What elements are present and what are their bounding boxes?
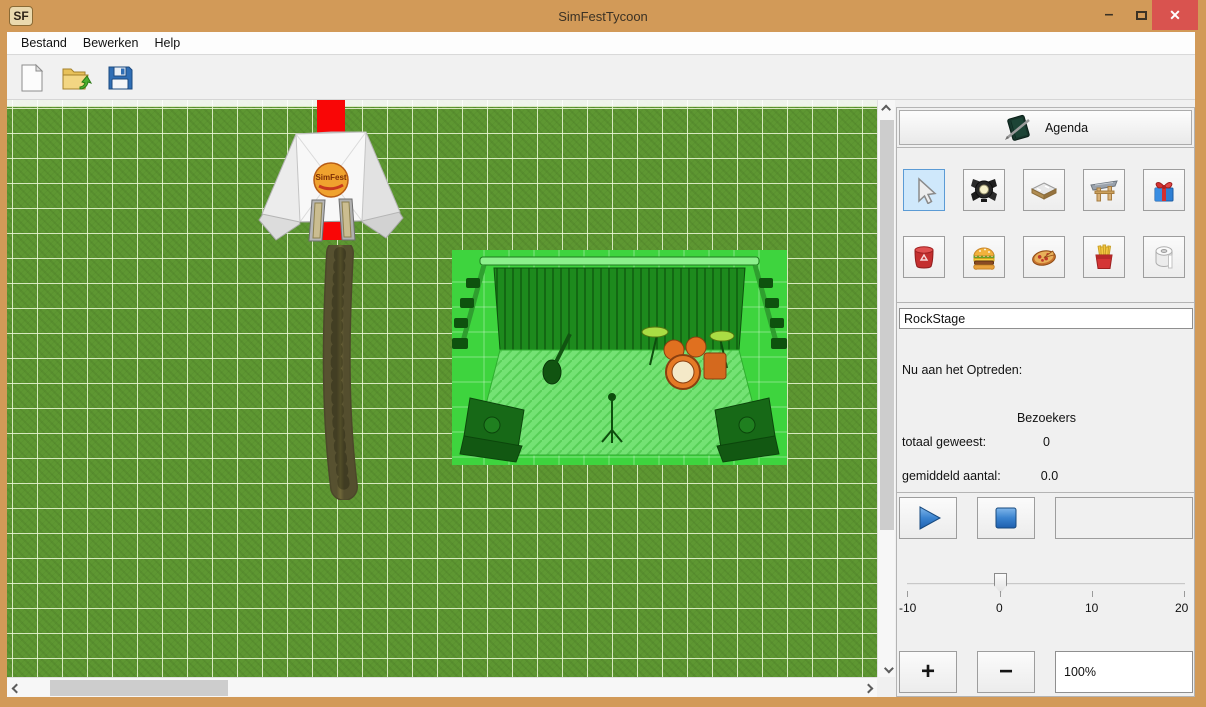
road-tile-icon bbox=[1030, 176, 1058, 204]
agenda-button[interactable]: Agenda bbox=[899, 110, 1192, 145]
slider-track[interactable] bbox=[907, 583, 1185, 585]
entrance-tent-object[interactable]: SimFest bbox=[256, 120, 406, 245]
vertical-scrollbar[interactable] bbox=[877, 100, 895, 677]
toolbar bbox=[7, 56, 1195, 100]
fries-icon bbox=[1090, 243, 1118, 271]
tent-logo: SimFest bbox=[314, 163, 348, 197]
menu-bar: Bestand Bewerken Help bbox=[7, 32, 1195, 55]
spotlight-icon bbox=[970, 176, 998, 204]
zoom-out-button[interactable]: − bbox=[977, 651, 1035, 693]
tent-leg-right bbox=[339, 199, 355, 240]
agenda-label: Agenda bbox=[1045, 121, 1088, 135]
chevron-down-icon bbox=[883, 663, 893, 673]
menu-help[interactable]: Help bbox=[147, 33, 187, 53]
entrance-gate-icon bbox=[1090, 176, 1118, 204]
trash-bin-icon bbox=[910, 243, 938, 271]
scroll-left-button[interactable] bbox=[7, 679, 25, 697]
tool-road-button[interactable] bbox=[1023, 169, 1065, 211]
agenda-section: Agenda bbox=[896, 107, 1195, 148]
new-file-button[interactable] bbox=[15, 61, 49, 95]
average-visitors-value: 0.0 bbox=[897, 469, 1202, 483]
chevron-up-icon bbox=[881, 104, 891, 114]
menu-bewerken[interactable]: Bewerken bbox=[76, 33, 146, 53]
application-window: SF SimFestTycoon – ✕ Bestand Bewerken He… bbox=[0, 0, 1206, 707]
tool-toilet-paper-button[interactable] bbox=[1143, 236, 1185, 278]
scroll-right-button[interactable] bbox=[859, 679, 877, 697]
slider-tick bbox=[1092, 591, 1093, 597]
chevron-right-icon bbox=[863, 683, 873, 693]
zoom-level-field[interactable] bbox=[1055, 651, 1193, 693]
maximize-icon bbox=[1136, 11, 1147, 20]
scroll-down-button[interactable] bbox=[878, 659, 896, 677]
slider-label-max: 20 bbox=[1175, 601, 1188, 615]
status-box bbox=[1055, 497, 1193, 539]
total-visitors-value: 0 bbox=[897, 435, 1196, 449]
close-button[interactable]: ✕ bbox=[1152, 0, 1198, 30]
side-panel: Agenda bbox=[896, 100, 1195, 697]
burger-icon bbox=[970, 243, 998, 271]
tools-section bbox=[896, 147, 1195, 303]
title-bar: SF SimFestTycoon – ✕ bbox=[0, 0, 1206, 32]
stage-speaker-left bbox=[460, 398, 524, 462]
open-file-button[interactable] bbox=[59, 61, 93, 95]
minimize-button[interactable]: – bbox=[1092, 0, 1126, 30]
slider-tick bbox=[907, 591, 908, 597]
client-area: Bestand Bewerken Help bbox=[7, 32, 1195, 697]
gift-icon bbox=[1150, 176, 1178, 204]
map-canvas[interactable]: SimFest bbox=[7, 100, 877, 677]
horizontal-scrollbar[interactable] bbox=[7, 677, 877, 697]
controls-section: -10 0 10 20 + − bbox=[896, 492, 1195, 697]
stop-button[interactable] bbox=[977, 497, 1035, 539]
tool-entrance-button[interactable] bbox=[1083, 169, 1125, 211]
toilet-paper-icon bbox=[1150, 243, 1178, 271]
open-file-icon bbox=[60, 63, 92, 93]
dirt-path-object[interactable] bbox=[322, 245, 367, 500]
scrollbar-corner bbox=[877, 677, 895, 697]
map-area: SimFest bbox=[7, 100, 895, 697]
vertical-scroll-thumb[interactable] bbox=[880, 120, 894, 530]
tent-leg-left bbox=[309, 200, 325, 241]
tool-select-button[interactable] bbox=[903, 169, 945, 211]
stage-speaker-right bbox=[715, 398, 779, 462]
svg-text:SimFest: SimFest bbox=[315, 173, 346, 182]
slider-thumb[interactable] bbox=[994, 573, 1007, 593]
pizza-icon bbox=[1030, 243, 1058, 271]
chevron-left-icon bbox=[11, 683, 21, 693]
save-button[interactable] bbox=[103, 61, 137, 95]
visitors-header: Bezoekers bbox=[897, 411, 1196, 425]
play-icon bbox=[913, 504, 943, 532]
zoom-in-button[interactable]: + bbox=[899, 651, 957, 693]
canvas-top-strip bbox=[7, 100, 877, 106]
slider-label-ten: 10 bbox=[1085, 601, 1098, 615]
new-file-icon bbox=[18, 63, 46, 93]
save-icon bbox=[106, 64, 134, 92]
scroll-up-button[interactable] bbox=[878, 100, 896, 118]
stage-info-section: Nu aan het Optreden: Bezoekers totaal ge… bbox=[896, 302, 1195, 493]
tool-fries-button[interactable] bbox=[1083, 236, 1125, 278]
now-performing-label: Nu aan het Optreden: bbox=[902, 363, 1022, 377]
window-title: SimFestTycoon bbox=[0, 0, 1206, 32]
play-button[interactable] bbox=[899, 497, 957, 539]
slider-tick bbox=[1000, 591, 1001, 597]
speed-slider: -10 0 10 20 bbox=[897, 563, 1196, 623]
tool-trash-button[interactable] bbox=[903, 236, 945, 278]
stage-object-selected[interactable] bbox=[452, 250, 787, 465]
slider-tick bbox=[1184, 591, 1185, 597]
slider-label-zero: 0 bbox=[996, 601, 1003, 615]
tool-burger-button[interactable] bbox=[963, 236, 1005, 278]
agenda-notebook-icon bbox=[1003, 113, 1033, 143]
stage-name-input[interactable] bbox=[899, 308, 1193, 329]
cursor-icon bbox=[910, 176, 938, 204]
tool-spotlight-button[interactable] bbox=[963, 169, 1005, 211]
tool-pizza-button[interactable] bbox=[1023, 236, 1065, 278]
menu-bestand[interactable]: Bestand bbox=[14, 33, 74, 53]
horizontal-scroll-thumb[interactable] bbox=[50, 680, 228, 696]
slider-label-min: -10 bbox=[899, 601, 916, 615]
stop-icon bbox=[992, 504, 1020, 532]
tool-gift-button[interactable] bbox=[1143, 169, 1185, 211]
